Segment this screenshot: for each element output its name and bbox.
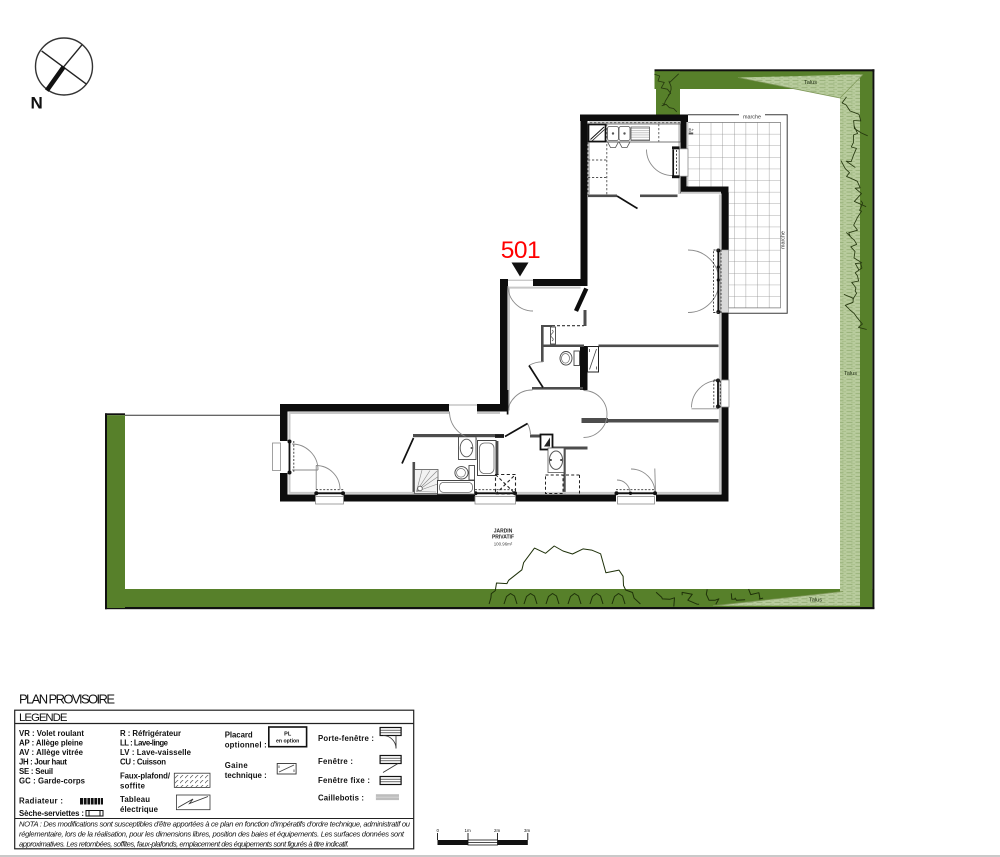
svg-text:1m: 1m — [465, 828, 472, 833]
svg-text:GC : Garde-corps: GC : Garde-corps — [19, 777, 86, 786]
svg-text:Talus: Talus — [804, 80, 817, 86]
svg-text:Caillebotis :: Caillebotis : — [318, 794, 364, 803]
svg-text:électrique: électrique — [120, 805, 159, 814]
svg-text:Fenêtre :: Fenêtre : — [318, 757, 353, 766]
svg-text:en option: en option — [276, 739, 299, 745]
svg-text:2m: 2m — [494, 828, 501, 833]
svg-text:R : Réfrigérateur: R : Réfrigérateur — [120, 729, 181, 738]
svg-text:AV : Allège vitrée: AV : Allège vitrée — [19, 748, 84, 757]
svg-text:marche: marche — [781, 231, 787, 249]
svg-text:N: N — [31, 94, 43, 113]
svg-text:LV : Lave-vaisselle: LV : Lave-vaisselle — [120, 748, 192, 757]
svg-text:JARDIN: JARDIN — [494, 529, 513, 535]
svg-text:réglementaire, lors de la réal: réglementaire, lors de la réalisation, p… — [19, 830, 405, 839]
svg-text:Radiateur :: Radiateur : — [19, 797, 63, 806]
svg-text:AP : Allège pleine: AP : Allège pleine — [19, 739, 84, 748]
svg-text:CU : Cuisson: CU : Cuisson — [120, 758, 166, 767]
svg-text:approximatives. Les retombées,: approximatives. Les retombées, soffites,… — [19, 840, 349, 849]
svg-text:SE : Seuil: SE : Seuil — [19, 767, 53, 776]
svg-text:Sèche-serviettes :: Sèche-serviettes : — [19, 809, 84, 818]
svg-text:100.96m²: 100.96m² — [494, 542, 513, 547]
svg-text:marche: marche — [743, 115, 761, 121]
svg-text:B+: B+ — [689, 128, 695, 133]
svg-text:LL : Lave-linge: LL : Lave-linge — [120, 739, 169, 748]
svg-text:Talus: Talus — [809, 598, 822, 604]
svg-text:PRIVATIF: PRIVATIF — [492, 535, 514, 541]
svg-text:Gaine: Gaine — [225, 761, 249, 770]
svg-text:NOTA : Des modifications sont: NOTA : Des modifications sont susceptibl… — [19, 820, 411, 829]
svg-text:PLAN PROVISOIRE: PLAN PROVISOIRE — [19, 692, 115, 707]
svg-text:Talus: Talus — [844, 371, 857, 377]
svg-text:soffite: soffite — [120, 782, 146, 791]
svg-text:Fenêtre fixe :: Fenêtre fixe : — [318, 776, 370, 785]
svg-text:technique :: technique : — [225, 771, 267, 780]
svg-text:Porte-fenêtre :: Porte-fenêtre : — [318, 734, 374, 743]
svg-text:3m: 3m — [524, 828, 531, 833]
svg-text:Faux-plafond/: Faux-plafond/ — [120, 772, 171, 781]
svg-text:501: 501 — [501, 237, 540, 264]
svg-text:Tableau: Tableau — [120, 795, 150, 804]
svg-text:optionnel :: optionnel : — [225, 741, 267, 750]
svg-text:Placard: Placard — [225, 731, 253, 740]
svg-text:PL: PL — [284, 732, 292, 738]
svg-text:JH : Jour haut: JH : Jour haut — [19, 758, 67, 767]
svg-text:VR : Volet roulant: VR : Volet roulant — [19, 729, 84, 738]
svg-text:LEGENDE: LEGENDE — [19, 712, 68, 724]
